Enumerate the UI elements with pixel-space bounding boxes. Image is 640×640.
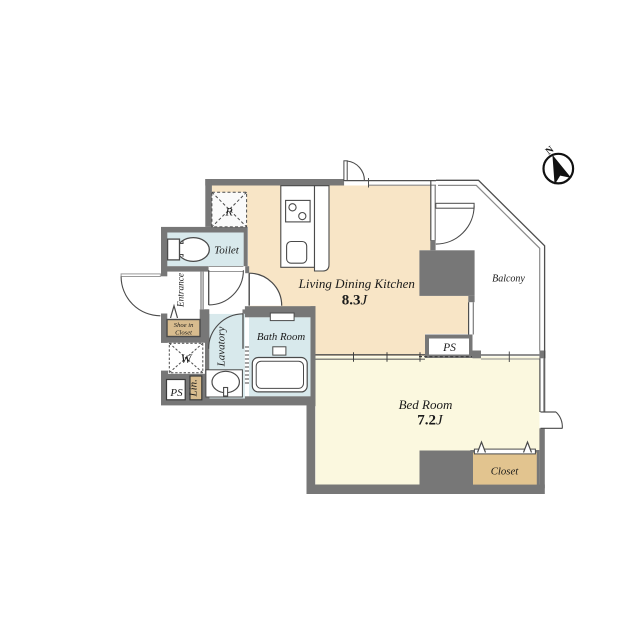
svg-text:PS: PS [169,387,183,399]
svg-text:Lin.: Lin. [187,379,199,397]
svg-text:Balcony: Balcony [492,274,525,285]
svg-text:PS: PS [442,342,456,354]
svg-text:R: R [224,205,233,219]
svg-text:7.2J: 7.2J [417,413,444,429]
svg-text:Toilet: Toilet [214,245,240,257]
svg-text:W: W [181,351,193,366]
svg-text:8.3J: 8.3J [342,293,369,309]
svg-text:Closet: Closet [175,329,192,336]
svg-text:Bath Room: Bath Room [257,331,305,343]
svg-text:Closet: Closet [491,466,520,478]
svg-text:Living Dining Kitchen: Living Dining Kitchen [298,276,415,291]
svg-text:Entrance: Entrance [176,273,186,308]
svg-text:Bed Room: Bed Room [399,397,453,412]
svg-text:Lavatory: Lavatory [215,327,227,368]
svg-text:Shoe in: Shoe in [174,322,194,329]
